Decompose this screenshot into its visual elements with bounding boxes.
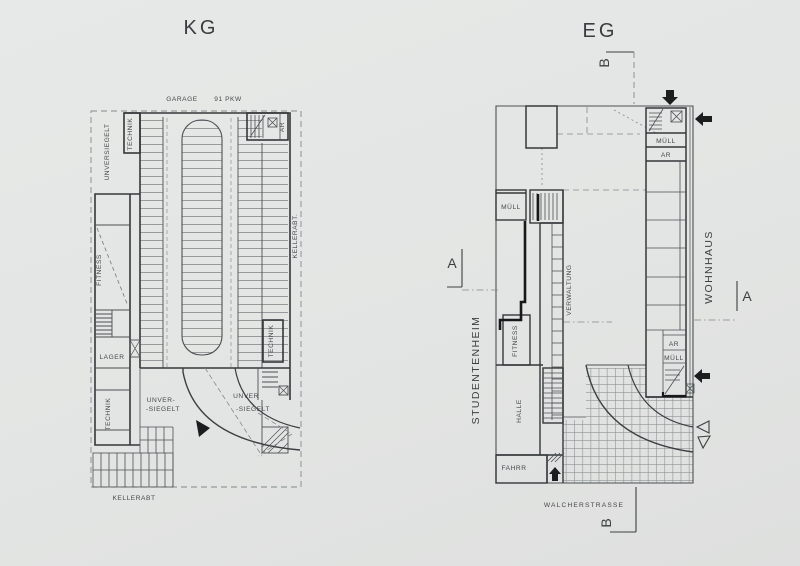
vehicle-arrow-in-icon — [697, 421, 709, 433]
entrance-arrow-up-icon — [549, 467, 561, 481]
section-b-bottom-label: B — [598, 518, 614, 527]
kg-kellerabt-bottom-label: KELLERABT — [112, 495, 155, 502]
kg-technik-top-label: TECHNIK — [127, 118, 134, 151]
eg-wohnhaus-label: WOHNHAUS — [703, 230, 715, 304]
entrance-arrow-down-icon — [662, 90, 678, 105]
eg-street-label: WALCHERSTRASSE — [544, 502, 624, 509]
kg-kellerabt-right-label: KELLERABT. — [292, 214, 299, 259]
section-a-left-label: A — [447, 255, 457, 271]
eg-muell-left-label: MÜLL — [501, 203, 521, 211]
eg-ramp-arrows — [697, 421, 710, 448]
kg-unversiegelt-top-label: UNVERSIEGELT — [104, 123, 111, 180]
eg-square-room — [526, 106, 557, 148]
eg-pavement-grid — [563, 368, 693, 483]
eg-cut-walls — [500, 194, 538, 330]
kg-capacity-label: 91 PKW — [214, 96, 242, 103]
kg-ramp-direction-arrow-icon — [196, 420, 210, 437]
eg-ar-top-label: AR — [661, 152, 671, 159]
kg-unversiegelt-right-label-2: -SIEGELT — [236, 406, 270, 413]
eg-studentenheim-walls — [496, 190, 563, 483]
entrance-arrow-left-bottom-icon — [694, 369, 710, 383]
entrance-arrow-left-top-icon — [695, 112, 712, 126]
eg-title: EG — [583, 20, 618, 42]
kg-parking-stalls — [140, 117, 288, 368]
kg-lager-label: LAGER — [99, 354, 124, 361]
kg-unversiegelt-mid-label-1: UNVER- — [147, 397, 176, 404]
section-b-top-label: B — [596, 58, 612, 67]
kg-garage-label: GARAGE — [166, 96, 198, 103]
eg-dashed-lines — [462, 107, 735, 322]
kg-technik-bottom-label: TECHNIK — [105, 398, 112, 431]
eg-fahrr-label: FAHRR — [501, 465, 526, 472]
section-a-right-label: A — [742, 288, 752, 304]
eg-studentenheim-label: STUDENTENHEIM — [470, 316, 482, 425]
kg-unversiegelt-mid-label-2: -SIEGELT — [146, 406, 180, 413]
eg-fitness-label: FITNESS — [512, 325, 519, 357]
kg-title: KG — [184, 17, 219, 39]
eg-ar-bottom-label: AR — [669, 341, 679, 348]
eg-halle-label: HALLE — [516, 399, 523, 423]
drawing-sheet: KG GARAGE 91 PKW UNVERSIEGELT TECHNIK AR… — [0, 0, 800, 566]
floor-plan-drawing: KG GARAGE 91 PKW UNVERSIEGELT TECHNIK AR… — [0, 0, 800, 566]
eg-muell-top-label: MÜLL — [656, 137, 676, 145]
kg-ar-label: AR — [279, 122, 286, 132]
vehicle-arrow-out-icon — [698, 436, 710, 448]
kg-ramp-core — [182, 120, 222, 355]
kg-plan: KG GARAGE 91 PKW UNVERSIEGELT TECHNIK AR… — [91, 17, 301, 502]
eg-muell-bottom-label: MÜLL — [664, 354, 684, 362]
kg-technik-right-label: TECHNIK — [268, 325, 275, 358]
eg-plan: B B A A EG MÜLL AR WOHNHAUS MÜLL VERWALT… — [447, 20, 752, 532]
eg-verwaltung-label: VERWALTUNG — [566, 264, 573, 315]
kg-fitness-label: FITNESS — [96, 254, 103, 286]
kg-unversiegelt-right-label-1: UNVER — [233, 393, 259, 400]
